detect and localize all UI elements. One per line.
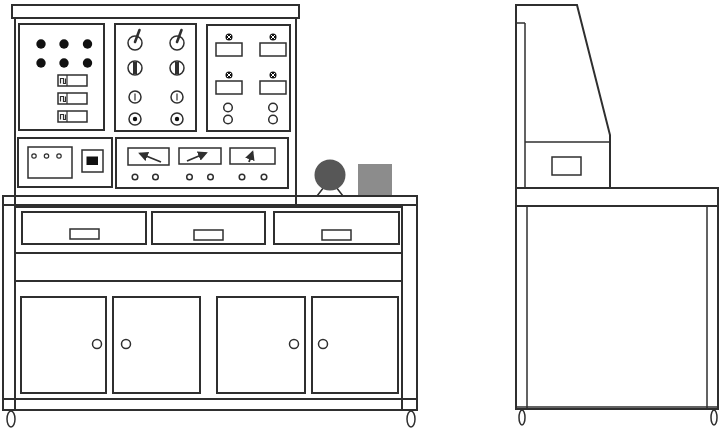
- caster-wheel: [519, 410, 525, 425]
- console-top-strip: [12, 5, 299, 18]
- lever-rotary-switch: [128, 30, 142, 50]
- three-pin-socket: [28, 147, 72, 178]
- terminal-post: [208, 174, 214, 180]
- caster-wheel: [7, 411, 15, 427]
- drawer-handle: [194, 230, 223, 240]
- indicator-light: [83, 39, 92, 48]
- right-post: [402, 205, 417, 410]
- panel-border: [207, 25, 290, 131]
- slot-socket: [82, 150, 103, 172]
- base-strip: [3, 399, 417, 410]
- indicator-light: [36, 39, 45, 48]
- cabinet: [15, 281, 402, 399]
- drawer-handle: [322, 230, 351, 240]
- drawing-canvas: [0, 0, 728, 434]
- side-drawer-box: [552, 157, 581, 175]
- push-button: [171, 113, 183, 125]
- analog-meter: [230, 148, 275, 164]
- door-knob: [122, 340, 131, 349]
- motor-body: [315, 160, 346, 191]
- slotted-knob: [171, 91, 183, 103]
- door-knob: [93, 340, 102, 349]
- drawer-band: [15, 207, 402, 253]
- cabinet-border: [15, 281, 402, 399]
- thick-bar-knob: [170, 61, 184, 75]
- drawer: [22, 212, 146, 244]
- caster-wheel: [711, 410, 717, 425]
- indicator-switch-panel: [19, 24, 104, 130]
- console-outline: [516, 5, 610, 188]
- slotted-knob: [129, 91, 141, 103]
- terminal-post: [224, 103, 233, 112]
- accessory-box: [358, 164, 392, 196]
- knob-panel: [115, 24, 196, 131]
- panel-border: [116, 138, 288, 188]
- meter-needle: [187, 153, 206, 161]
- rocker-switch: [58, 75, 87, 86]
- indicator-light: [83, 58, 92, 67]
- cabinet-side: [516, 206, 718, 409]
- console-body: [15, 18, 296, 205]
- drawer: [152, 212, 265, 244]
- circuit-breaker: [216, 34, 242, 57]
- terminal-post: [132, 174, 138, 180]
- worktop-side: [516, 188, 718, 206]
- terminal-post: [261, 174, 267, 180]
- left-post: [3, 205, 15, 410]
- terminal-post: [187, 174, 193, 180]
- workbench-technical-drawing: [0, 0, 728, 434]
- indicator-light: [59, 39, 68, 48]
- meter-needle: [249, 152, 253, 162]
- worktop: [3, 196, 417, 205]
- breaker-panel: [207, 25, 290, 131]
- cabinet-side-border: [516, 206, 718, 409]
- circuit-breaker: [260, 72, 286, 95]
- rocker-switch: [58, 93, 87, 104]
- meter-needle: [140, 154, 161, 163]
- analog-meter: [128, 148, 169, 165]
- terminal-post: [269, 115, 278, 124]
- terminal-post: [153, 174, 159, 180]
- sloped-console-side: [516, 5, 610, 188]
- front-view: [3, 5, 417, 427]
- cabinet-door: [21, 297, 106, 393]
- door-knob: [319, 340, 328, 349]
- motor: [315, 160, 346, 197]
- terminal-post: [224, 115, 233, 124]
- bench: [3, 196, 417, 427]
- cabinet-door: [217, 297, 305, 393]
- circuit-breaker: [216, 72, 242, 95]
- drawer: [274, 212, 399, 244]
- terminal-post: [239, 174, 245, 180]
- push-button: [129, 113, 141, 125]
- door-knob: [290, 340, 299, 349]
- lever-rotary-switch: [170, 30, 184, 50]
- cabinet-door: [113, 297, 200, 393]
- circuit-breaker: [260, 34, 286, 57]
- terminal-post: [269, 103, 278, 112]
- caster-wheel: [407, 411, 415, 427]
- cabinet-door: [312, 297, 398, 393]
- analog-meter: [179, 148, 221, 164]
- side-view: [516, 5, 718, 425]
- apron-strip: [15, 253, 402, 281]
- drawer-handle: [70, 229, 99, 239]
- thick-bar-knob: [128, 61, 142, 75]
- indicator-light: [36, 58, 45, 67]
- indicator-light: [59, 58, 68, 67]
- rocker-switch: [58, 111, 87, 122]
- meter-panel: [116, 138, 288, 188]
- socket-panel: [18, 138, 112, 187]
